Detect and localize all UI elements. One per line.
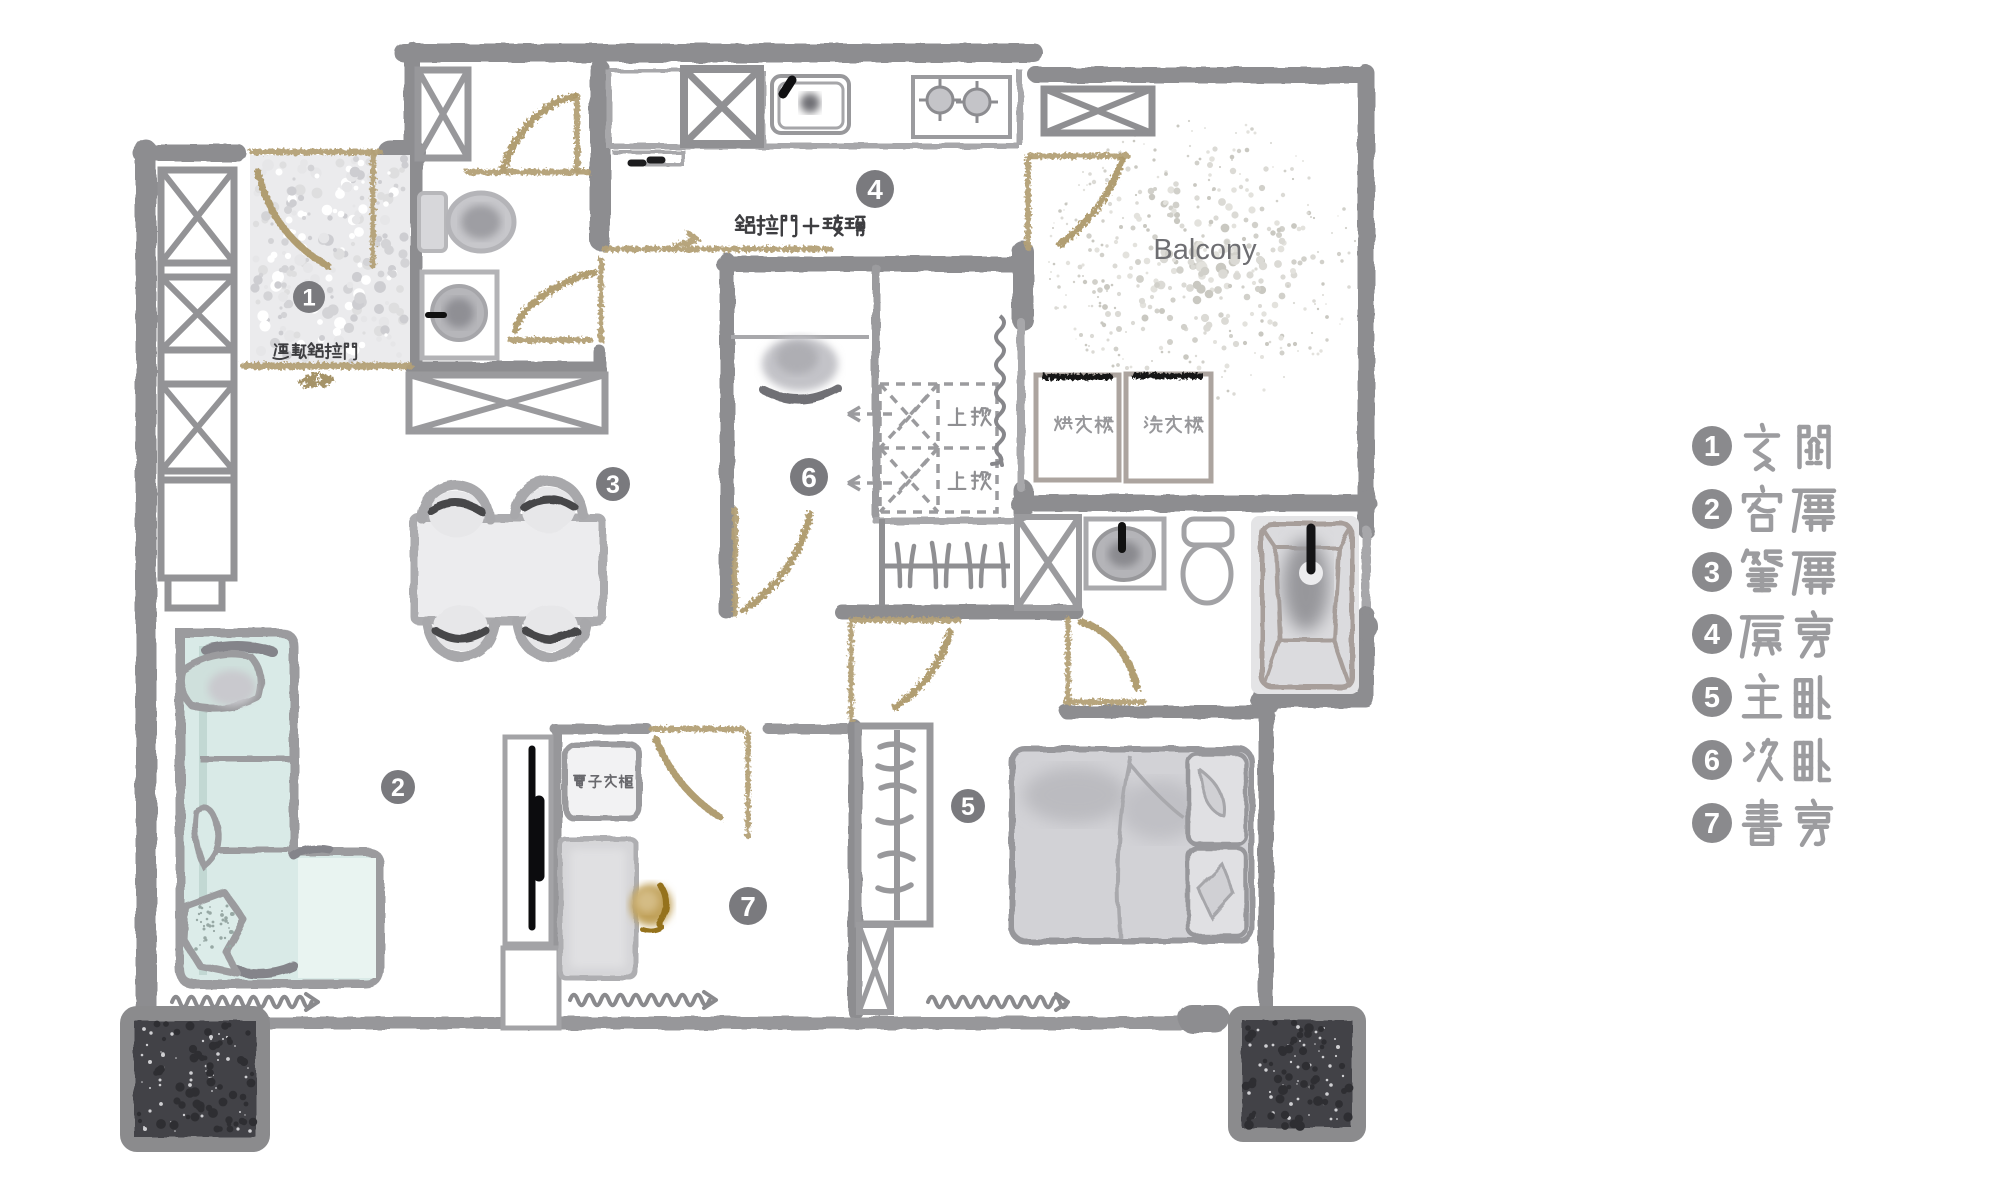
svg-text:1: 1 bbox=[1704, 431, 1720, 463]
svg-text:6: 6 bbox=[1704, 745, 1720, 777]
svg-text:7: 7 bbox=[1704, 808, 1720, 840]
svg-text:4: 4 bbox=[867, 174, 883, 205]
svg-text:3: 3 bbox=[606, 471, 620, 499]
svg-text:2: 2 bbox=[1704, 494, 1720, 526]
svg-text:1: 1 bbox=[302, 284, 315, 311]
svg-text:5: 5 bbox=[961, 793, 975, 821]
svg-text:Balcony: Balcony bbox=[1153, 234, 1257, 266]
svg-text:2: 2 bbox=[391, 774, 405, 802]
svg-text:4: 4 bbox=[1704, 619, 1720, 651]
svg-text:7: 7 bbox=[740, 891, 756, 922]
svg-text:6: 6 bbox=[801, 462, 817, 493]
svg-text:3: 3 bbox=[1704, 557, 1720, 589]
svg-text:5: 5 bbox=[1704, 682, 1720, 714]
